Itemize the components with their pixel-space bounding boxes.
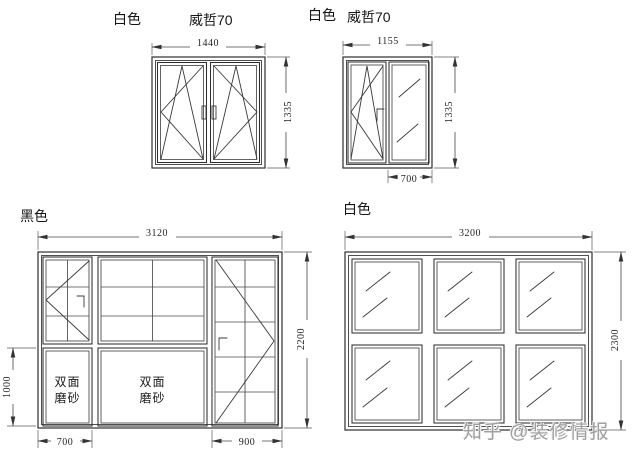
dim-left-width-value: 700 (57, 437, 74, 448)
dim-height: 2300 (594, 252, 626, 430)
handle-icon (219, 338, 227, 350)
brand-label: 威哲70 (347, 9, 391, 25)
glass-cell (434, 345, 504, 423)
dim-height: 1335 (434, 57, 459, 168)
frosted-note-line2: 磨砂 (54, 391, 80, 405)
glass-cell (516, 345, 585, 423)
dim-height-value: 2300 (610, 329, 621, 351)
sash-right-full (212, 257, 278, 426)
glass-mark (397, 124, 418, 142)
sash-left-top (43, 257, 92, 344)
dim-width-value: 1155 (377, 36, 399, 47)
dim-width-value: 1440 (197, 38, 219, 49)
dim-width-value: 3200 (459, 228, 481, 239)
dim-left-width: 700 (38, 430, 92, 448)
dim-band-height: 1000 (2, 348, 36, 426)
dim-height: 1335 (267, 57, 294, 168)
drawing-top-left: 白色 威哲70 1440 (113, 11, 294, 168)
handle-icon (77, 296, 84, 307)
dim-fixed-width: 700 (388, 170, 432, 185)
panel-middle-frosted: 双面 磨砂 (98, 348, 207, 426)
window-frame (343, 57, 432, 168)
color-label: 白色 (308, 7, 336, 23)
dim-width-value: 3120 (146, 228, 168, 239)
glass-cell (352, 345, 422, 423)
zhihu-watermark: 知乎 @装修情报 (463, 417, 633, 444)
dim-height-value: 2200 (296, 328, 307, 350)
dim-width: 1440 (152, 38, 265, 55)
drawing-bottom-left: 黑色 3120 双面 磨砂 (2, 208, 312, 448)
handle-icon (212, 106, 216, 119)
glass-cell (352, 259, 422, 333)
dim-width: 3200 (345, 228, 592, 250)
sash-left (158, 63, 207, 163)
frosted-note-line2: 磨砂 (139, 391, 165, 405)
dim-fixed-width-value: 700 (401, 174, 418, 185)
frosted-note-line1: 双面 (139, 375, 165, 389)
fixed-panel (389, 62, 429, 163)
drawing-top-right: 白色 威哲70 1155 (308, 7, 459, 185)
sash-left (348, 62, 386, 163)
dim-band-height-value: 1000 (2, 376, 13, 398)
handle-icon (202, 106, 206, 119)
glass-mark (399, 79, 420, 97)
dim-height-value: 1335 (444, 101, 455, 123)
panel-left-frosted: 双面 磨砂 (43, 348, 92, 426)
tilt-turn-symbol (351, 66, 383, 159)
tilt-turn-symbol (214, 66, 257, 159)
color-label: 白色 (343, 201, 371, 217)
brand-label: 威哲70 (189, 12, 233, 28)
dim-height: 2200 (284, 252, 312, 428)
dim-right-width-value: 900 (239, 437, 256, 448)
glass-cell (434, 259, 504, 333)
glass-cell (516, 259, 585, 333)
window-frame (152, 57, 265, 168)
tilt-turn-symbol (161, 66, 203, 159)
window-drawings-sheet: 白色 威哲70 1440 (0, 0, 633, 454)
sash-right (211, 63, 260, 163)
dim-height-value: 1335 (283, 101, 294, 123)
window-frame-inner (349, 256, 589, 427)
drawing-bottom-right: 白色 3200 (343, 201, 626, 430)
color-label: 白色 (113, 11, 141, 27)
dim-width: 1155 (343, 36, 432, 55)
drawing-canvas: 白色 威哲70 1440 (0, 0, 633, 454)
color-label: 黑色 (20, 208, 48, 224)
panel-middle-top (98, 257, 207, 344)
dim-right-width: 900 (212, 430, 282, 448)
frosted-note-line1: 双面 (54, 375, 80, 389)
dim-width: 3120 (38, 228, 282, 250)
